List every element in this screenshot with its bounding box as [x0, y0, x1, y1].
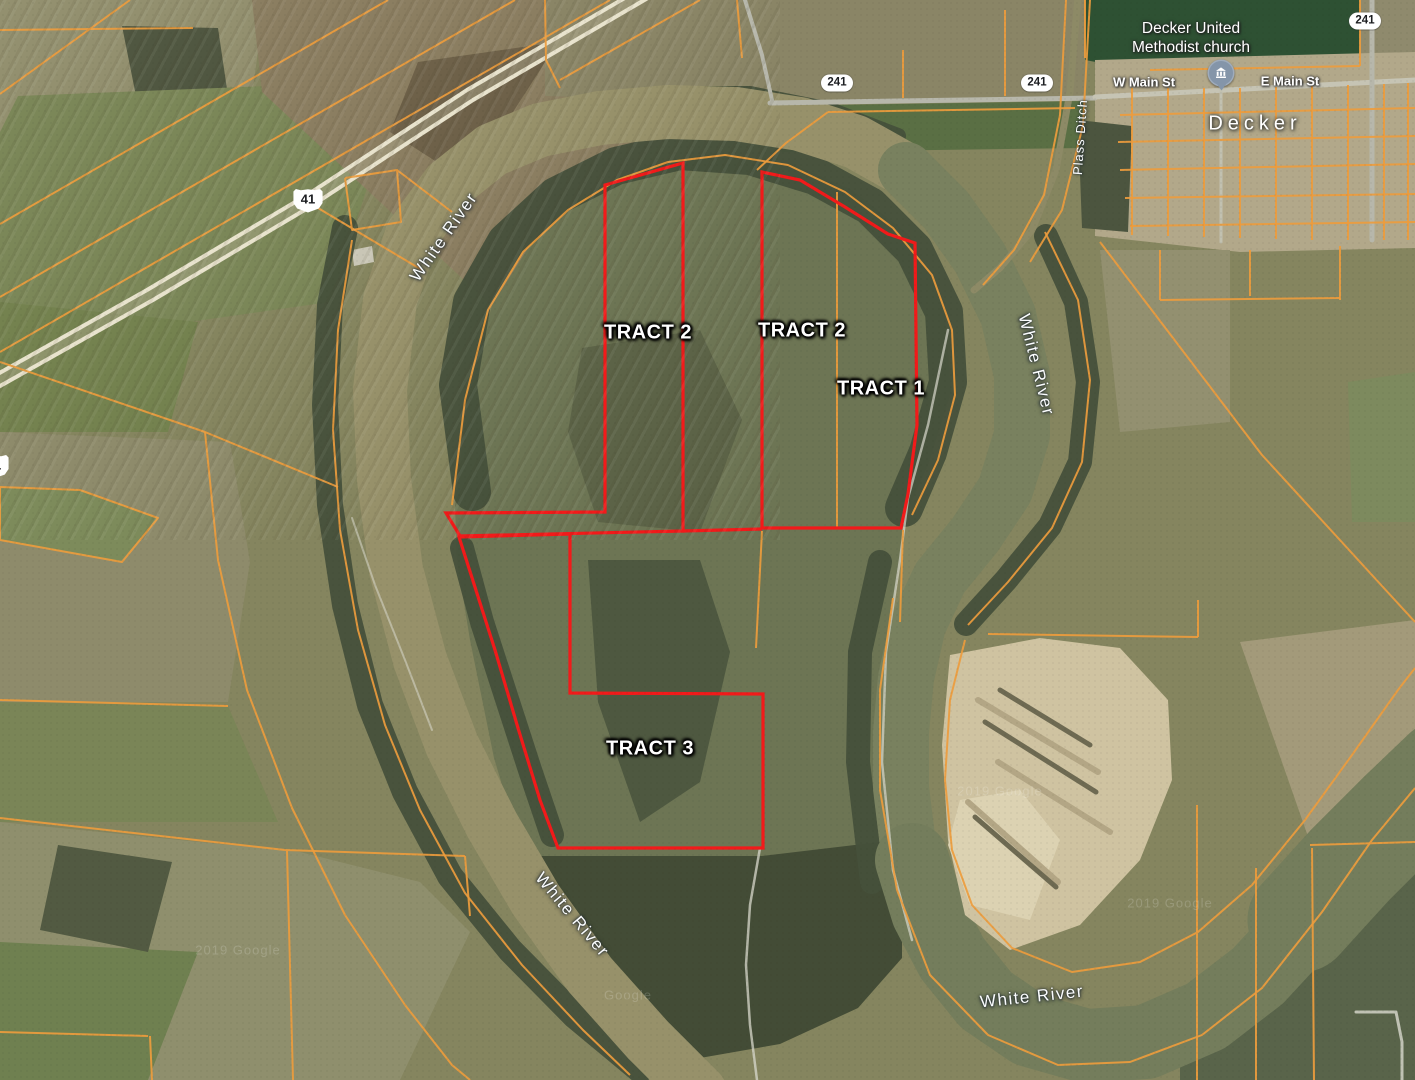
map-imagery	[0, 0, 1415, 1080]
church-pin-icon[interactable]	[1208, 60, 1235, 87]
terrain-rm-field-b	[1100, 250, 1230, 432]
route-241-shield: 241	[821, 75, 853, 92]
poi-label-line1: Decker United	[1132, 20, 1250, 39]
google-watermark: Google	[604, 988, 652, 1003]
tract-label-3: TRACT 3	[606, 738, 694, 761]
google-watermark: 2019 Google	[1127, 896, 1212, 911]
poi-label-church[interactable]: Decker United Methodist church	[1132, 20, 1250, 58]
street-label-w-main: W Main St	[1113, 75, 1175, 90]
building-glyph-icon	[1213, 65, 1230, 82]
tract-label-2-east: TRACT 2	[758, 320, 846, 343]
tract-label-2-west: TRACT 2	[604, 322, 692, 345]
poi-label-line2: Methodist church	[1132, 39, 1250, 58]
satellite-map[interactable]: White River White River White River Whit…	[0, 0, 1415, 1080]
tract-label-1: TRACT 1	[837, 378, 925, 401]
route-241-shield: 241	[1349, 13, 1381, 30]
terrain-rm-green	[1348, 372, 1415, 522]
route-241-shield: 241	[1021, 75, 1053, 92]
town-label-decker: Decker	[1208, 113, 1301, 136]
street-label-e-main: E Main St	[1261, 74, 1320, 89]
google-watermark: 2019 Google	[957, 784, 1042, 799]
google-watermark: 2019 Google	[195, 943, 280, 958]
terrain-farm-bldg-a	[352, 246, 374, 266]
tract-boundary-connector	[683, 529, 762, 531]
terrain-ml-green	[0, 702, 278, 822]
terrain-ml-field	[0, 432, 250, 702]
parcel-line	[988, 634, 1198, 637]
